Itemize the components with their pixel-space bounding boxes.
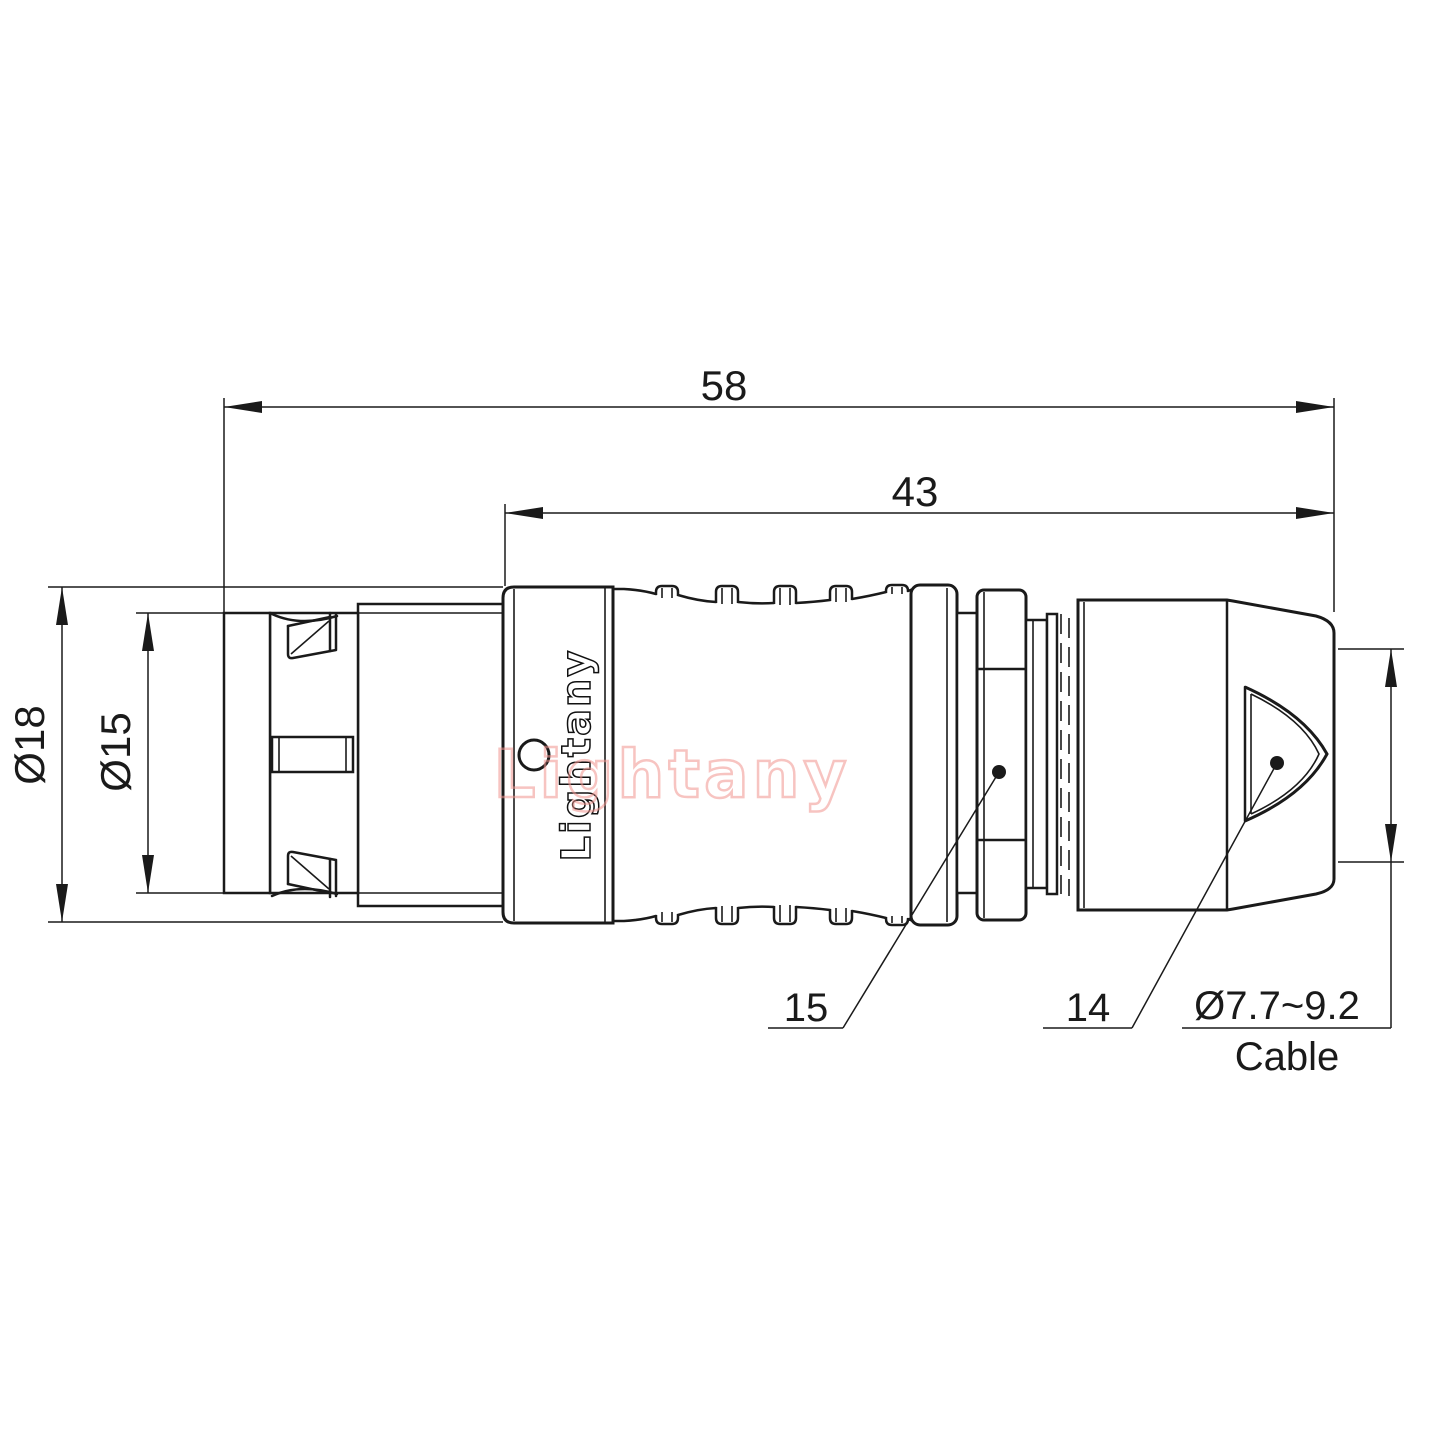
grip-end-bead — [911, 585, 957, 925]
arrowhead-bottom — [1385, 824, 1397, 862]
valley-top-4 — [852, 592, 886, 599]
dimension-rear-length: 43 — [505, 468, 1334, 586]
valley-bottom-3 — [796, 907, 830, 910]
sleeve-diameter-label: Ø15 — [92, 712, 139, 791]
outer-diameter-label: Ø18 — [6, 705, 53, 784]
dimension-overall-length: 58 — [224, 362, 1334, 613]
valley-top-2 — [738, 602, 774, 603]
arrowhead-bottom — [56, 884, 68, 922]
front-rim-band — [224, 613, 270, 893]
valley-top-3 — [796, 600, 830, 603]
rear-assembly — [957, 590, 1334, 920]
rear-length-label: 43 — [892, 468, 939, 515]
sleeve-rear-collar — [358, 604, 503, 906]
arrowhead-left — [505, 507, 543, 519]
thread-section — [1061, 614, 1069, 896]
valley-bottom-2 — [738, 907, 774, 908]
valley-bottom-4 — [852, 911, 886, 918]
valley-top-0 — [613, 589, 656, 594]
leader-dot-15 — [992, 765, 1006, 779]
arrowhead-left — [224, 401, 262, 413]
rear-collar-ring — [1026, 614, 1057, 894]
valley-bottom-1 — [678, 908, 716, 915]
arrowhead-bottom — [142, 855, 154, 893]
connector-technical-drawing: 58 43 Ø18 Ø15 — [0, 0, 1440, 1440]
keyway-window — [272, 737, 353, 772]
watermark-text: Lightany — [493, 736, 850, 813]
arrowhead-top — [1385, 649, 1397, 687]
arrowhead-right — [1296, 507, 1334, 519]
item-number-15: 15 — [784, 986, 829, 1030]
cable-word-label: Cable — [1235, 1035, 1340, 1079]
overall-length-label: 58 — [701, 362, 748, 409]
item-number-14: 14 — [1066, 986, 1111, 1030]
valley-bottom-0 — [613, 916, 656, 921]
cable-range-label: Ø7.7~9.2 — [1194, 984, 1360, 1028]
arrowhead-right — [1296, 401, 1334, 413]
collar-front-of-nut — [957, 613, 977, 893]
drawing-page: 58 43 Ø18 Ø15 — [0, 0, 1440, 1440]
coupling-nut — [977, 590, 1026, 920]
arrowhead-top — [142, 613, 154, 651]
dimension-sleeve-diameter: Ø15 — [92, 613, 224, 893]
back-shell — [1078, 600, 1334, 910]
arrowhead-top — [56, 587, 68, 625]
front-sleeve — [224, 604, 503, 906]
valley-top-1 — [678, 595, 716, 602]
leader-dot-14 — [1270, 756, 1284, 770]
